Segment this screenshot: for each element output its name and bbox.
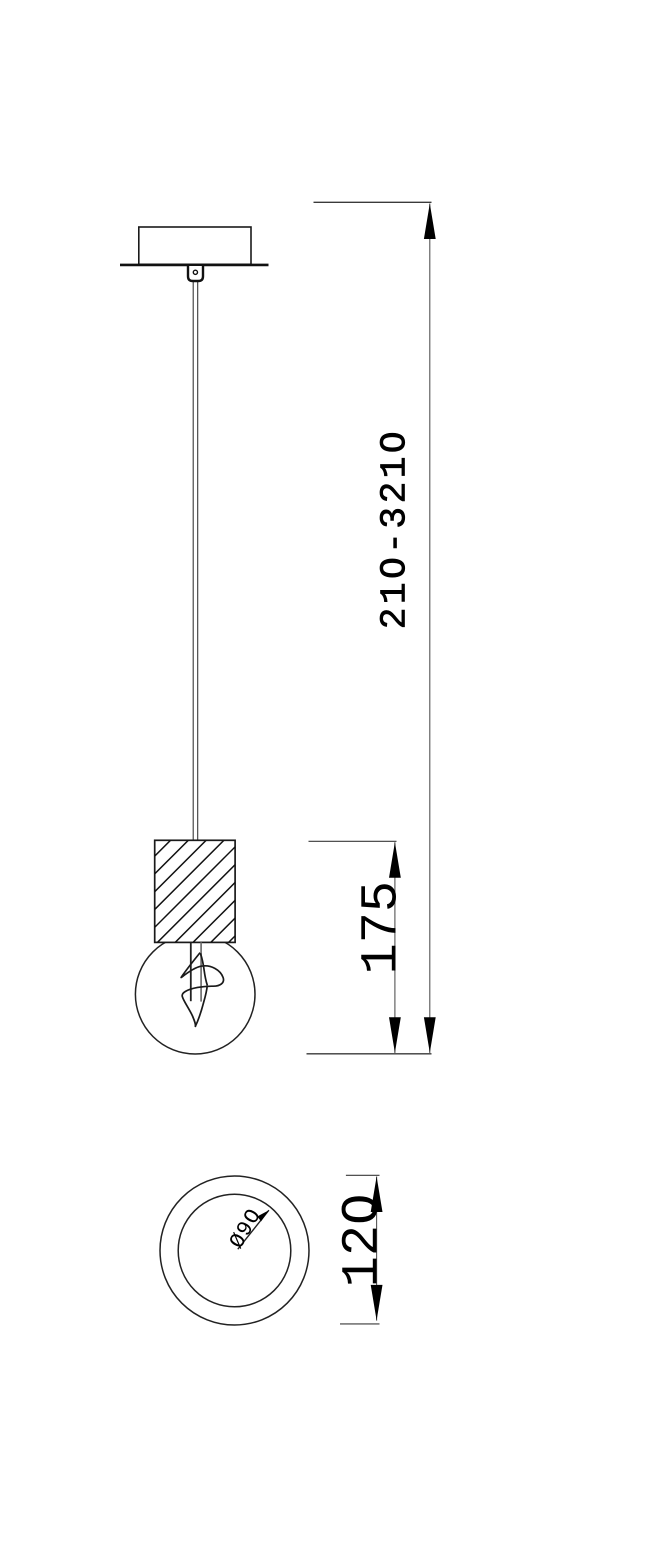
svg-text:21O-321O: 21O-321O bbox=[374, 428, 415, 629]
svg-text:175: 175 bbox=[352, 881, 411, 975]
svg-text:12O: 12O bbox=[334, 1194, 393, 1288]
